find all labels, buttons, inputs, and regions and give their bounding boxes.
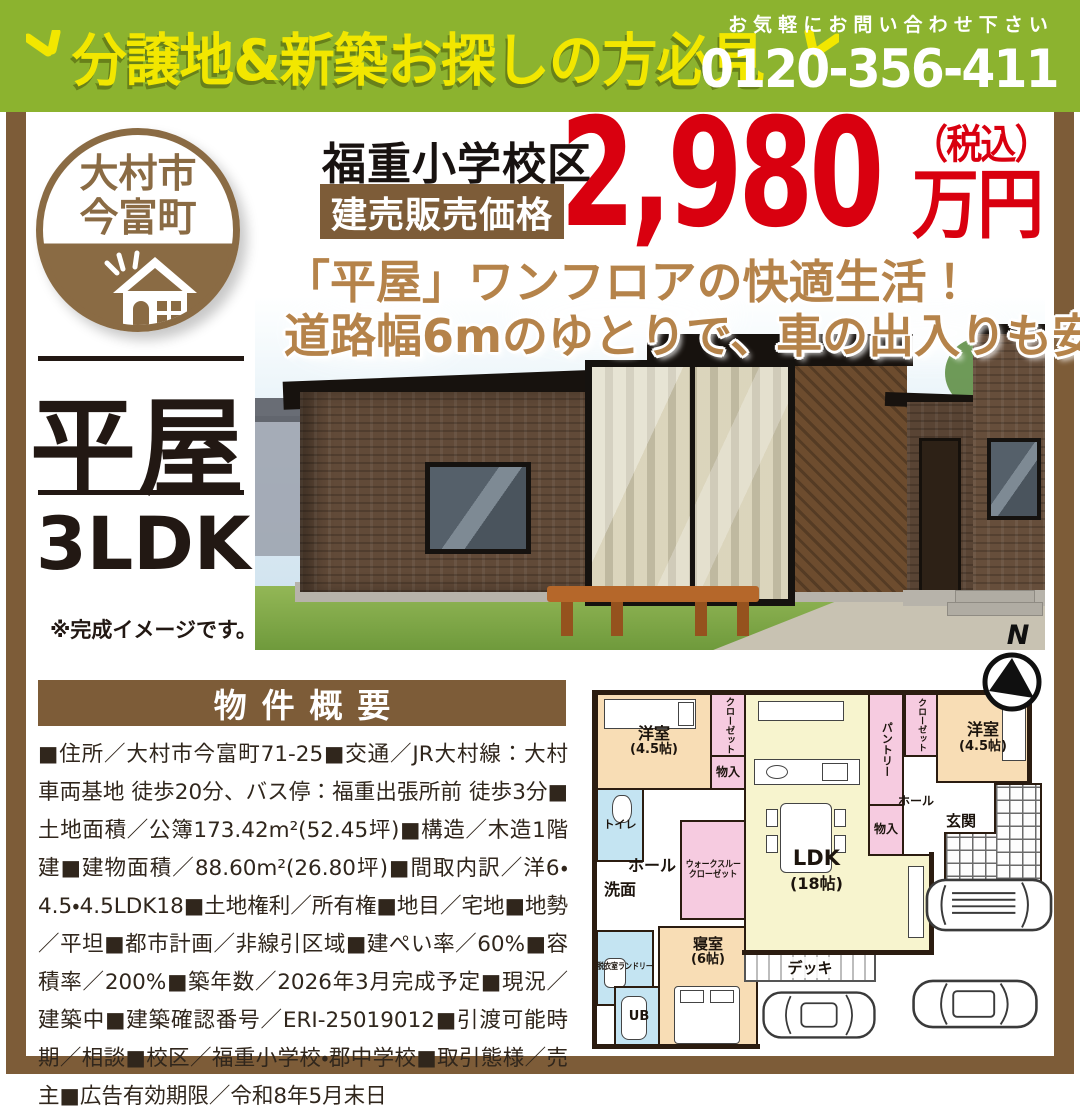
flyer-page: { "banner": { "headline": "分譲地&新築お探しの方必見…: [0, 0, 1080, 1080]
price-block: 2,980 （税込） 万円: [560, 112, 1064, 240]
price-amount: 2,980: [560, 112, 880, 237]
bench: [547, 586, 759, 602]
frame-right: [1054, 112, 1074, 1074]
divider-bottom: [38, 490, 244, 495]
price-unit: 万円: [912, 170, 1046, 240]
window-small: [425, 462, 531, 554]
badge-town: 今富町: [43, 197, 233, 241]
spark-left-icon: [26, 30, 66, 82]
room-closet2: クローゼット: [904, 693, 938, 757]
divider-top: [38, 356, 244, 361]
window-right: [987, 438, 1041, 520]
room-pantry: パントリー: [868, 693, 904, 806]
badge-city: 大村市: [43, 153, 233, 197]
svg-text:N: N: [1007, 622, 1030, 651]
car-icon-compact: [760, 984, 878, 1046]
north-compass: N: [978, 622, 1048, 718]
property-details: ■住所／大村市今富町71-25■交通／JR大村線：大村車両基地 徒歩20分、バス…: [38, 736, 568, 1116]
label-washroom: 洗面: [604, 876, 636, 900]
property-layout: 3LDK: [36, 502, 250, 587]
room-western1: 洋室 (4.5帖): [596, 693, 712, 790]
room-bedroom: 寝室 (6帖): [658, 926, 758, 1048]
overview-title-bar: 物件概要: [38, 680, 566, 726]
price-label: 建売販売価格: [320, 184, 564, 239]
room-toilet: トイレ: [596, 788, 644, 862]
frame-left: [6, 112, 26, 1074]
room-walkthrough-closet: ウォークスルー クローゼット: [680, 820, 746, 920]
location-badge: 大村市 今富町: [36, 128, 240, 332]
deck: デッキ: [744, 952, 876, 982]
catch-line2: 道路幅6mのゆとりで、車の出入りも安心。: [284, 300, 1080, 366]
label-hall1: ホール: [628, 852, 676, 876]
room-closet1: クローゼット: [710, 693, 746, 757]
label-ldk: LDK (18帖): [790, 846, 843, 894]
top-banner: 分譲地&新築お探しの方必見 お気軽にお問い合わせ下さい 0120-356-411: [0, 0, 1080, 112]
car-icon-van: [922, 872, 1056, 938]
overview-title: 物件概要: [199, 679, 405, 727]
banner-headline: 分譲地&新築お探しの方必見: [72, 15, 764, 97]
house-icon: [93, 247, 197, 329]
car-icon-sedan: [900, 972, 1050, 1036]
image-note: ※完成イメージです。: [50, 614, 257, 644]
school-zone: 福重小学校区: [322, 128, 592, 192]
sliding-glass-door: [585, 360, 795, 606]
room-storage2: 物入: [868, 804, 904, 856]
contact-note: お気軽にお問い合わせ下さい: [716, 10, 1066, 37]
label-entrance: 玄関: [944, 810, 978, 831]
room-ub: UB: [614, 986, 664, 1048]
room-storage1: 物入: [710, 755, 746, 790]
room-ldk: [744, 693, 870, 955]
label-hall2: ホール: [898, 792, 934, 809]
entry-door: [919, 438, 961, 596]
